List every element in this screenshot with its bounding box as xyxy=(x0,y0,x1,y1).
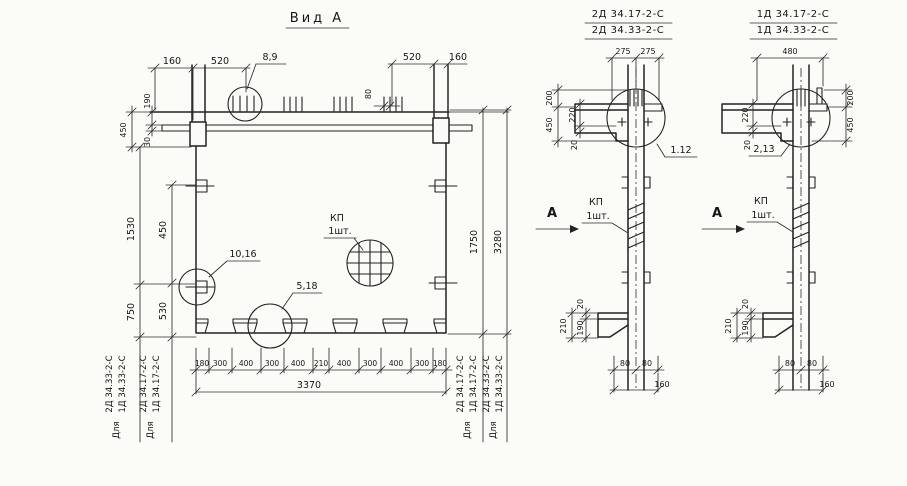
label-left-outer-1: 2Д 34.33-2-С xyxy=(105,355,115,412)
section-right-title-2: 1Д 34.33-2-С xyxy=(757,25,830,36)
section-letter-a-left: А xyxy=(547,206,557,221)
section-right-dims-base: 80 80 160 xyxy=(773,356,835,394)
section-left-kp-qty: 1шт. xyxy=(586,211,609,222)
seg-7: 300 xyxy=(363,359,378,368)
dim-520-right: 520 xyxy=(403,52,421,63)
section-left-cut-arrow: А xyxy=(536,206,579,233)
callout-2-13-label: 2,13 xyxy=(753,144,774,155)
section-left-title-1: 2Д 34.17-2-С xyxy=(592,9,665,20)
dim-190-right: 190 xyxy=(741,320,750,335)
dim-220-left: 220 xyxy=(568,107,577,122)
seg-0: 180 xyxy=(195,359,210,368)
detail-circle-5-18 xyxy=(248,304,292,348)
section-left-kp-label: КП 1шт. xyxy=(582,197,628,233)
dim-1530: 1530 xyxy=(126,217,137,241)
section-left: 2Д 34.17-2-С 2Д 34.33-2-С 275 275 1.12 xyxy=(536,9,697,394)
callout-10-16-label: 10,16 xyxy=(229,249,256,260)
dim-80a-right: 80 xyxy=(785,359,795,368)
dim-750: 750 xyxy=(126,303,137,321)
section-right-cut-arrow: А xyxy=(702,206,745,233)
seg-10: 180 xyxy=(433,359,448,368)
label-right-outer-2: 1Д 34.33-2-С xyxy=(495,355,505,412)
seg-2: 400 xyxy=(239,359,254,368)
section-right-kp-qty: 1шт. xyxy=(751,210,774,221)
dim-520-left: 520 xyxy=(211,56,229,67)
dim-bottom-total: 3370 xyxy=(192,373,450,396)
dim-530: 530 xyxy=(158,302,169,320)
view-title: Вид А xyxy=(290,11,344,26)
dim-30: 30 xyxy=(143,137,152,147)
seg-4: 400 xyxy=(291,359,306,368)
callout-10-16: 10,16 xyxy=(209,249,260,277)
seg-9: 300 xyxy=(415,359,430,368)
callout-1-12-label: 1.12 xyxy=(670,145,691,156)
dim-80b-right: 80 xyxy=(807,359,817,368)
seg-5: 210 xyxy=(314,359,329,368)
rebar-dowels xyxy=(233,96,402,111)
callout-8-9: 8,9 xyxy=(247,52,286,89)
dim-275-b: 275 xyxy=(640,47,655,56)
dim-480: 480 xyxy=(782,47,797,56)
for-labels-left: 2Д 34.33-2-С 1Д 34.33-2-С Для 2Д 34.17-2… xyxy=(105,355,162,438)
dim-210-right: 210 xyxy=(724,318,733,333)
dim-bottom-segments: 180 300 400 300 400 210 400 300 400 300 … xyxy=(190,348,452,374)
dim-200-right: 200 xyxy=(846,90,855,105)
dim-160-left: 160 xyxy=(163,56,181,67)
section-left-title-2: 2Д 34.33-2-С xyxy=(592,25,665,36)
dim-20-right: 20 xyxy=(743,140,752,150)
section-left-dim-275: 275 275 xyxy=(606,47,664,100)
dim-450-left: 450 xyxy=(158,221,169,239)
callout-5-18-label: 5,18 xyxy=(296,281,317,292)
label-left-outer-word: Для xyxy=(112,421,122,438)
dim-top-left: 160 520 xyxy=(148,56,250,120)
dim-1750: 1750 xyxy=(469,230,480,254)
dim-190: 190 xyxy=(143,93,152,108)
seg-8: 400 xyxy=(389,359,404,368)
dim-top-right: 520 160 xyxy=(388,52,467,118)
dim-200-left: 200 xyxy=(545,90,554,105)
for-labels-right: 2Д 34.17-2-С 1Д 34.17-2-С Для 2Д 34.33-2… xyxy=(456,355,505,438)
seg-1: 300 xyxy=(213,359,228,368)
section-right-title-1: 1Д 34.17-2-С xyxy=(757,9,830,20)
dim-3280: 3280 xyxy=(493,230,504,254)
label-right-inner-1: 2Д 34.17-2-С xyxy=(456,355,466,412)
cut-arrowhead-right xyxy=(736,225,745,233)
dim-f20-left: 20 xyxy=(576,299,585,309)
section-left-dims-foot: 210 20 190 xyxy=(559,299,598,342)
dim-160-sect-right: 160 xyxy=(819,380,834,389)
drawing-canvas: Вид А 8,9 xyxy=(0,0,907,486)
dim-160-right: 160 xyxy=(449,52,467,63)
kp-mesh-circle xyxy=(347,240,393,286)
right-column-block xyxy=(433,118,449,143)
dim-210-left: 210 xyxy=(559,318,568,333)
section-right-kp-label: КП 1шт. xyxy=(747,196,793,232)
section-right-dims-side: 220 20 200 450 xyxy=(741,84,855,150)
bottom-teeth xyxy=(196,319,446,333)
seg-6: 400 xyxy=(337,359,352,368)
label-right-inner-2: 1Д 34.17-2-С xyxy=(469,355,479,412)
callout-8-9-label: 8,9 xyxy=(262,52,277,63)
label-left-inner-1: 2Д 34.17-2-С xyxy=(139,355,149,412)
dim-450-beam: 450 xyxy=(119,122,128,137)
dim-3370: 3370 xyxy=(297,380,321,391)
dim-80b-left: 80 xyxy=(642,359,652,368)
section-right: 1Д 34.17-2-С 1Д 34.33-2-С 480 2,13 xyxy=(702,9,855,394)
label-left-inner-word: Для xyxy=(146,421,156,438)
dim-rebar-80: 80 xyxy=(364,89,400,110)
section-left-dims-base: 80 80 160 xyxy=(608,356,670,394)
dim-220-right: 220 xyxy=(741,107,750,122)
section-left-kp-text: КП xyxy=(589,197,603,208)
kp-text: КП xyxy=(330,213,344,224)
dim-80: 80 xyxy=(364,89,373,99)
dim-160-sect-left: 160 xyxy=(654,380,669,389)
dim-80a-left: 80 xyxy=(620,359,630,368)
label-right-inner-word: Для xyxy=(463,421,473,438)
section-right-callout: 2,13 xyxy=(749,144,790,156)
section-letter-a-right: А xyxy=(712,206,722,221)
seg-3: 300 xyxy=(265,359,280,368)
section-left-callout: 1.12 xyxy=(657,144,697,157)
dim-20-left: 20 xyxy=(570,140,579,150)
dim-f20-right: 20 xyxy=(741,299,750,309)
side-tabs xyxy=(186,180,457,293)
section-right-kp-text: КП xyxy=(754,196,768,207)
view-a: Вид А 8,9 xyxy=(105,11,511,442)
dim-275-a: 275 xyxy=(615,47,630,56)
section-right-dims-foot: 210 20 190 xyxy=(724,299,763,342)
label-left-inner-2: 1Д 34.17-2-С xyxy=(152,355,162,412)
dim-190-left: 190 xyxy=(576,320,585,335)
dim-450-sect-left: 450 xyxy=(545,117,554,132)
callout-5-18: 5,18 xyxy=(282,281,322,309)
label-right-outer-1: 2Д 34.33-2-С xyxy=(482,355,492,412)
dim-450-sect-right: 450 xyxy=(846,117,855,132)
kp-qty-text: 1шт. xyxy=(328,226,351,237)
label-right-outer-word: Для xyxy=(489,421,499,438)
cut-arrowhead-left xyxy=(570,225,579,233)
label-left-outer-2: 1Д 34.33-2-С xyxy=(118,355,128,412)
left-column-block xyxy=(190,122,206,146)
blueprint-sheet: Вид А 8,9 xyxy=(0,0,907,486)
